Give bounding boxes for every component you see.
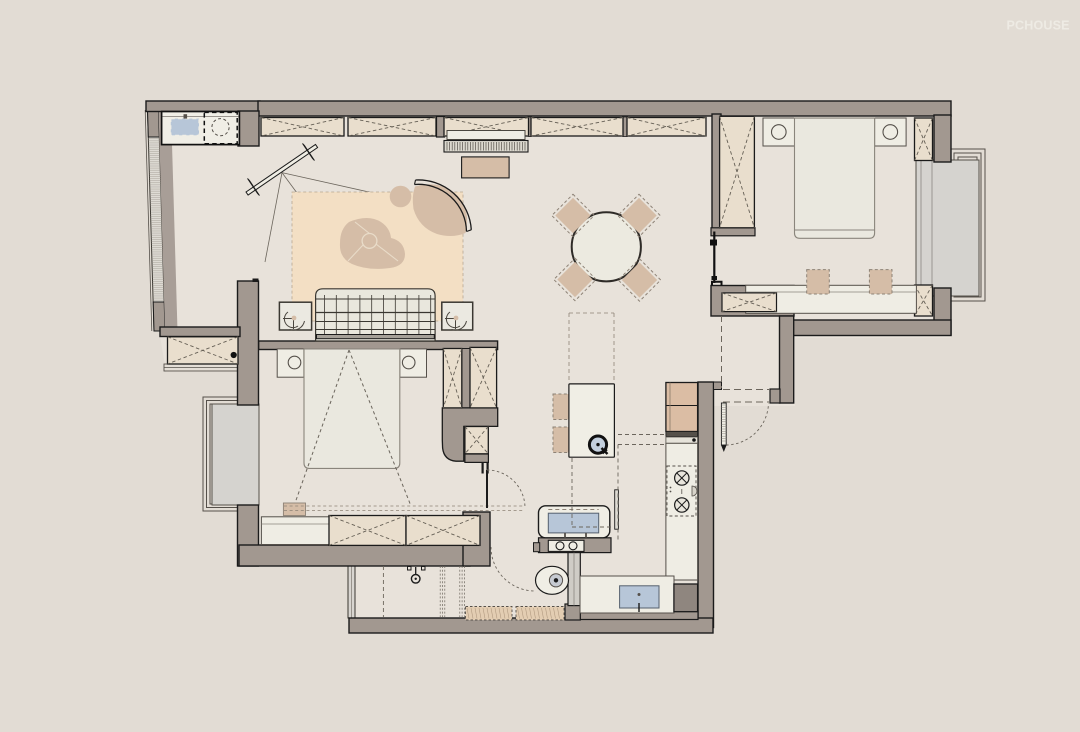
- svg-text:PCHOUSE: PCHOUSE: [1007, 19, 1070, 33]
